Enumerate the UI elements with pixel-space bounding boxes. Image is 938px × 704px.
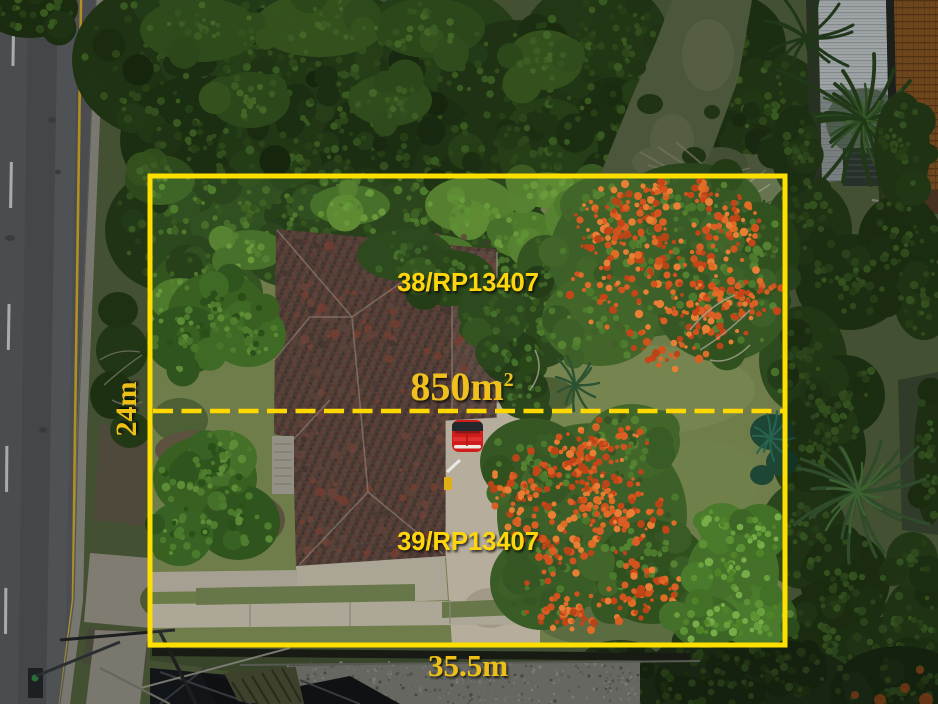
svg-text:35.5m: 35.5m [428, 648, 508, 683]
svg-text:39/RP13407: 39/RP13407 [397, 528, 539, 556]
svg-text:850m2: 850m2 [410, 364, 513, 409]
svg-text:38/RP13407: 38/RP13407 [397, 269, 539, 297]
svg-text:24m: 24m [110, 382, 143, 437]
